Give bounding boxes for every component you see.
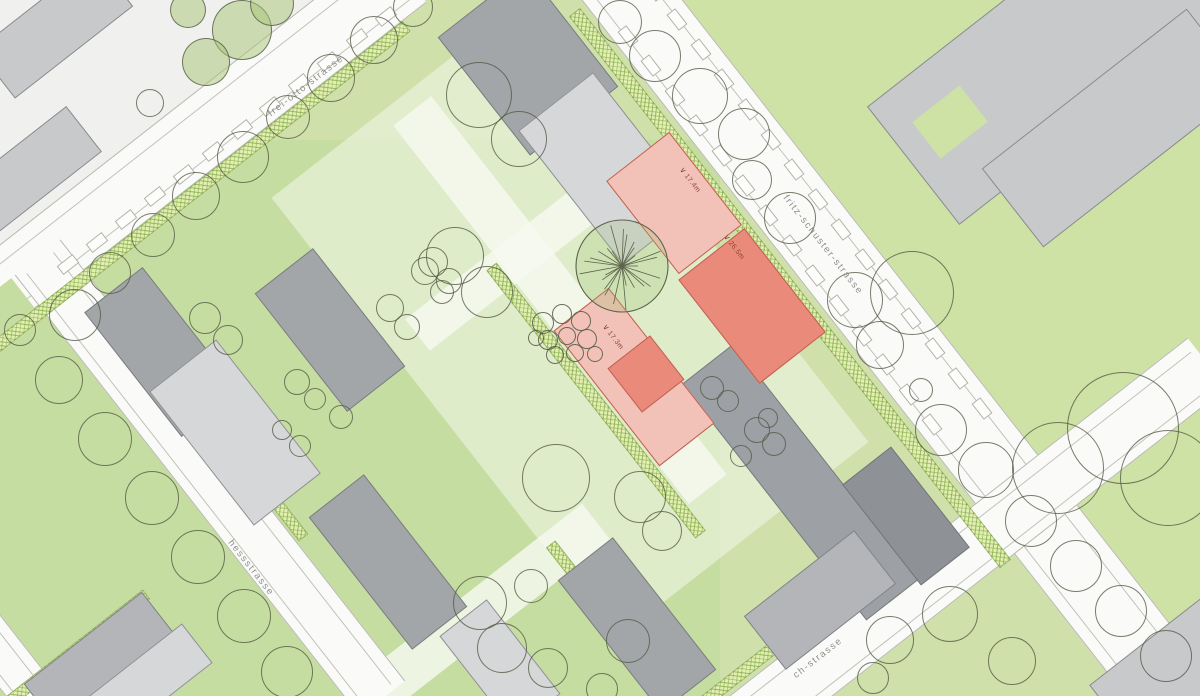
large-tree-icon bbox=[572, 216, 672, 316]
tree-circle bbox=[125, 471, 179, 525]
tree-circle bbox=[1050, 540, 1102, 592]
tree-circle bbox=[762, 432, 786, 456]
tree-circle bbox=[528, 648, 568, 688]
tree-circle bbox=[909, 378, 933, 402]
shrub-circle bbox=[528, 330, 544, 346]
tree-circle bbox=[172, 172, 220, 220]
site-plan-map: frei-otto-strasse fritz-schuster-strasse… bbox=[0, 0, 1200, 696]
tree-circle bbox=[350, 16, 398, 64]
tree-circle bbox=[717, 390, 739, 412]
tree-circle bbox=[217, 131, 269, 183]
tree-circle bbox=[870, 251, 954, 335]
tree-circle bbox=[182, 38, 230, 86]
tree-circle bbox=[329, 405, 353, 429]
tree-circle bbox=[866, 616, 914, 664]
tree-circle bbox=[958, 442, 1014, 498]
tree-circle bbox=[453, 576, 507, 630]
tree-circle bbox=[131, 213, 175, 257]
tree-circle bbox=[89, 252, 131, 294]
tree-circle bbox=[272, 420, 292, 440]
tree-circle bbox=[78, 412, 132, 466]
tree-circle bbox=[915, 404, 967, 456]
shrub-circle bbox=[566, 344, 584, 362]
tree-circle bbox=[461, 266, 513, 318]
tree-circle bbox=[136, 89, 164, 117]
tree-circle bbox=[642, 511, 682, 551]
shrub-circle bbox=[552, 304, 572, 324]
tree-circle bbox=[988, 637, 1036, 685]
tree-circle bbox=[672, 68, 728, 124]
tree-circle bbox=[35, 356, 83, 404]
tree-circle bbox=[514, 569, 548, 603]
tree-circle bbox=[394, 314, 420, 340]
tree-circle bbox=[171, 530, 225, 584]
tree-circle bbox=[758, 408, 778, 428]
shrub-circle bbox=[546, 346, 564, 364]
tree-circle bbox=[261, 646, 313, 696]
tree-circle bbox=[477, 623, 527, 673]
shrub-circle bbox=[558, 327, 576, 345]
tree-circle bbox=[304, 388, 326, 410]
tree-circle bbox=[4, 314, 36, 346]
tree-circle bbox=[629, 30, 681, 82]
tree-circle bbox=[430, 280, 454, 304]
tree-circle bbox=[732, 160, 772, 200]
tree-circle bbox=[730, 445, 752, 467]
tree-circle bbox=[491, 111, 547, 167]
tree-circle bbox=[289, 435, 311, 457]
tree-circle bbox=[857, 662, 889, 694]
tree-circle bbox=[217, 589, 271, 643]
tree-circle bbox=[213, 325, 243, 355]
tree-circle bbox=[522, 444, 590, 512]
map-layers bbox=[0, 0, 1200, 696]
tree-circle bbox=[922, 586, 978, 642]
tree-circle bbox=[718, 108, 770, 160]
large-tree-glyph bbox=[572, 216, 672, 316]
shrub-circle bbox=[587, 346, 603, 362]
tree-circle bbox=[1140, 630, 1192, 682]
tree-circle bbox=[606, 619, 650, 663]
tree-circle bbox=[1095, 585, 1147, 637]
tree-circle bbox=[49, 289, 101, 341]
